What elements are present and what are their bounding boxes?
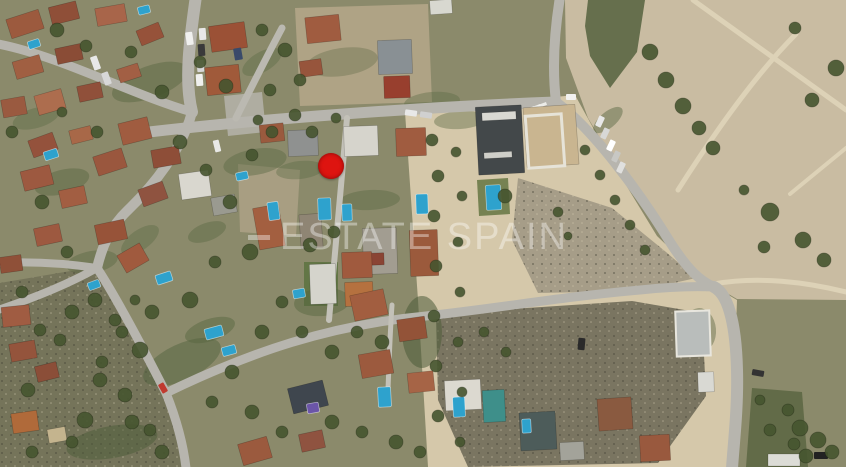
- tree: [289, 109, 301, 121]
- tree: [706, 141, 720, 155]
- tree: [264, 84, 276, 96]
- tree: [118, 388, 132, 402]
- tree: [658, 72, 674, 88]
- tree: [553, 207, 563, 217]
- tree: [610, 195, 620, 205]
- car: [566, 94, 576, 100]
- tree: [145, 305, 159, 319]
- tree: [173, 135, 187, 149]
- tree: [278, 43, 292, 57]
- tree: [144, 424, 156, 436]
- tree: [96, 356, 108, 368]
- tree: [209, 256, 221, 268]
- tree: [34, 324, 46, 336]
- tree: [125, 415, 139, 429]
- tree: [432, 170, 444, 182]
- tree: [116, 326, 128, 338]
- tree: [88, 293, 102, 307]
- building: [384, 76, 411, 99]
- car: [196, 74, 204, 86]
- tree: [255, 325, 269, 339]
- building: [430, 0, 453, 15]
- tree: [242, 244, 258, 260]
- tree: [426, 134, 438, 146]
- tree: [788, 438, 800, 450]
- tree: [792, 420, 808, 436]
- building: [407, 371, 435, 394]
- tree: [640, 245, 650, 255]
- tree: [206, 396, 218, 408]
- building: [397, 316, 428, 342]
- tree: [758, 241, 770, 253]
- tree: [50, 23, 64, 37]
- tree: [351, 326, 363, 338]
- tree: [21, 383, 35, 397]
- tree: [328, 226, 340, 238]
- swimming-pool: [306, 402, 320, 414]
- building: [396, 127, 427, 156]
- tree: [80, 40, 92, 52]
- road: [554, 0, 560, 102]
- property-marker[interactable]: [318, 153, 344, 179]
- building: [1, 96, 28, 118]
- swimming-pool: [452, 397, 465, 418]
- tree: [331, 113, 341, 123]
- tree: [761, 203, 779, 221]
- building: [309, 264, 336, 305]
- building: [482, 111, 516, 121]
- building: [377, 39, 412, 74]
- tree: [109, 314, 121, 326]
- swimming-pool: [342, 204, 353, 221]
- tree: [501, 347, 511, 357]
- tree: [428, 210, 440, 222]
- tree: [325, 415, 339, 429]
- tree: [457, 191, 467, 201]
- tree: [91, 126, 103, 138]
- tree: [498, 189, 512, 203]
- tree: [223, 195, 237, 209]
- tree: [453, 337, 463, 347]
- building: [639, 434, 670, 462]
- tree: [432, 410, 444, 422]
- tree: [428, 310, 440, 322]
- building: [560, 441, 585, 460]
- tree: [6, 126, 18, 138]
- tree: [276, 426, 288, 438]
- building: [208, 22, 247, 53]
- tree: [810, 432, 826, 448]
- tree: [375, 335, 389, 349]
- satellite-imagery: [0, 0, 846, 467]
- tree: [294, 74, 306, 86]
- tree: [194, 56, 206, 68]
- building: [305, 14, 342, 43]
- tree: [457, 387, 467, 397]
- tree: [356, 426, 368, 438]
- building: [11, 410, 40, 433]
- building: [342, 251, 373, 278]
- tree: [451, 147, 461, 157]
- tree: [200, 164, 212, 176]
- tree: [389, 435, 403, 449]
- building: [0, 255, 23, 274]
- building: [768, 454, 800, 466]
- tree: [266, 126, 278, 138]
- building: [358, 349, 394, 378]
- tree: [93, 373, 107, 387]
- building: [343, 125, 378, 156]
- swimming-pool: [292, 288, 305, 299]
- tree: [246, 149, 258, 161]
- satellite-map[interactable]: ESTATE SPAIN: [0, 0, 846, 467]
- building: [675, 310, 711, 356]
- tree: [65, 305, 79, 319]
- tree: [54, 334, 66, 346]
- tree: [132, 342, 148, 358]
- tree: [595, 170, 605, 180]
- tree: [675, 98, 691, 114]
- car: [577, 338, 585, 351]
- tree: [303, 238, 317, 252]
- tree: [325, 345, 339, 359]
- tree: [795, 232, 811, 248]
- building: [597, 397, 633, 431]
- swimming-pool: [318, 198, 332, 220]
- tree: [296, 326, 308, 338]
- swimming-pool: [522, 419, 532, 433]
- car: [199, 28, 207, 40]
- tree: [155, 85, 169, 99]
- tree: [453, 237, 463, 247]
- tree: [479, 327, 489, 337]
- tree: [253, 115, 263, 125]
- tree: [755, 395, 765, 405]
- tree: [430, 260, 442, 272]
- tree: [225, 365, 239, 379]
- building: [47, 427, 67, 444]
- tree: [77, 412, 93, 428]
- swimming-pool: [416, 194, 429, 214]
- swimming-pool: [377, 387, 391, 408]
- tree: [35, 195, 49, 209]
- road: [188, 0, 196, 112]
- car: [198, 44, 206, 56]
- building: [484, 151, 512, 158]
- tree: [739, 185, 749, 195]
- tree: [245, 405, 259, 419]
- tree: [625, 220, 635, 230]
- tree: [26, 446, 38, 458]
- tree: [580, 145, 590, 155]
- tree: [455, 437, 465, 447]
- tree: [66, 436, 78, 448]
- swimming-pool: [267, 201, 280, 220]
- tree: [16, 286, 28, 298]
- tree: [57, 107, 67, 117]
- building: [698, 372, 715, 393]
- tree: [256, 24, 268, 36]
- tree: [219, 79, 233, 93]
- tree: [306, 126, 318, 138]
- tree: [182, 292, 198, 308]
- tree: [817, 253, 831, 267]
- building: [1, 305, 31, 328]
- tree: [130, 295, 140, 305]
- tree: [61, 246, 73, 258]
- tree: [789, 22, 801, 34]
- building: [482, 389, 506, 422]
- tree: [805, 93, 819, 107]
- tree: [455, 287, 465, 297]
- tree: [692, 121, 706, 135]
- tree: [155, 445, 169, 459]
- tree: [782, 404, 794, 416]
- tree: [825, 445, 839, 459]
- tree: [430, 360, 442, 372]
- tree: [764, 424, 776, 436]
- tree: [642, 44, 658, 60]
- tree: [276, 296, 288, 308]
- tree: [564, 232, 572, 240]
- tree: [799, 449, 813, 463]
- tree: [828, 60, 844, 76]
- tree: [125, 46, 137, 58]
- tree: [414, 446, 426, 458]
